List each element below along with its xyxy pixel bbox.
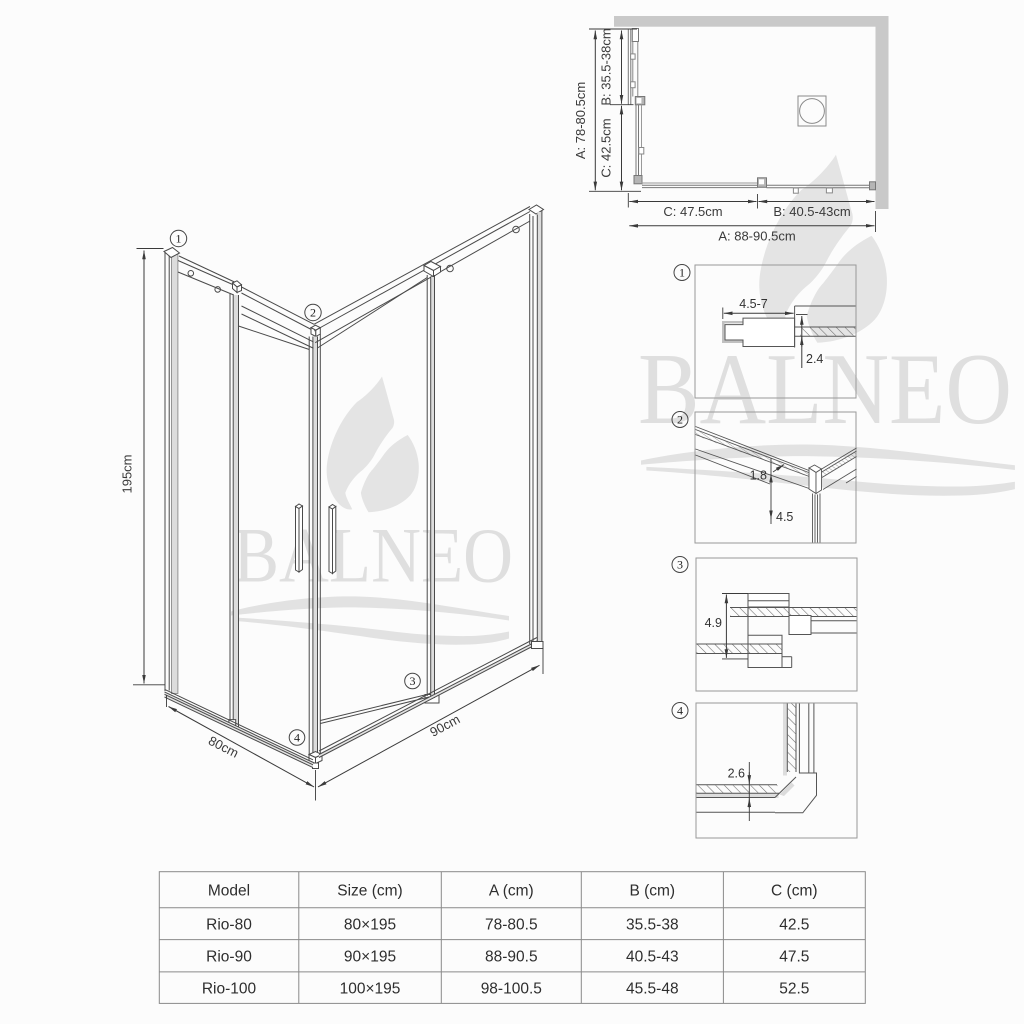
- svg-text:40.5-43: 40.5-43: [626, 949, 679, 966]
- svg-text:90×195: 90×195: [344, 949, 396, 966]
- svg-text:2: 2: [677, 413, 683, 427]
- svg-text:42.5: 42.5: [779, 917, 809, 934]
- svg-text:2.4: 2.4: [806, 352, 823, 366]
- svg-text:2: 2: [310, 306, 316, 320]
- svg-text:52.5: 52.5: [779, 981, 809, 998]
- svg-text:98-100.5: 98-100.5: [481, 981, 542, 998]
- svg-text:47.5: 47.5: [779, 949, 809, 966]
- svg-text:Model: Model: [208, 883, 250, 900]
- svg-text:Size (cm): Size (cm): [337, 883, 402, 900]
- svg-text:35.5-38: 35.5-38: [626, 917, 679, 934]
- svg-text:3: 3: [677, 558, 683, 572]
- svg-text:4.5: 4.5: [776, 510, 793, 524]
- svg-text:45.5-48: 45.5-48: [626, 981, 679, 998]
- svg-text:A (cm): A (cm): [489, 883, 534, 900]
- svg-text:B: 40.5-43cm: B: 40.5-43cm: [773, 204, 850, 219]
- svg-text:A: 88-90.5cm: A: 88-90.5cm: [718, 229, 795, 244]
- svg-text:195cm: 195cm: [120, 454, 135, 493]
- svg-text:80×195: 80×195: [344, 917, 396, 934]
- svg-text:C (cm): C (cm): [771, 883, 818, 900]
- svg-text:88-90.5: 88-90.5: [485, 949, 538, 966]
- svg-text:2.6: 2.6: [728, 767, 745, 781]
- svg-text:4.5-7: 4.5-7: [739, 297, 768, 311]
- svg-text:3: 3: [410, 674, 416, 688]
- svg-text:A: 78-80.5cm: A: 78-80.5cm: [573, 82, 588, 159]
- svg-text:1: 1: [176, 232, 182, 246]
- svg-text:1.8: 1.8: [750, 469, 767, 483]
- svg-text:100×195: 100×195: [340, 981, 401, 998]
- svg-text:4.9: 4.9: [705, 616, 722, 630]
- svg-text:4: 4: [294, 731, 300, 745]
- svg-text:Rio-90: Rio-90: [206, 949, 252, 966]
- svg-text:Rio-80: Rio-80: [206, 917, 252, 934]
- svg-text:B: 35.5-38cm: B: 35.5-38cm: [599, 28, 614, 105]
- svg-text:1: 1: [679, 266, 685, 280]
- svg-text:78-80.5: 78-80.5: [485, 917, 538, 934]
- svg-text:4: 4: [677, 704, 683, 718]
- svg-text:Rio-100: Rio-100: [202, 981, 257, 998]
- svg-text:B (cm): B (cm): [629, 883, 675, 900]
- svg-text:C: 42.5cm: C: 42.5cm: [599, 118, 614, 177]
- svg-text:C: 47.5cm: C: 47.5cm: [663, 204, 722, 219]
- svg-text:BALNEO: BALNEO: [233, 512, 513, 599]
- svg-text:BALNEO: BALNEO: [638, 333, 1012, 446]
